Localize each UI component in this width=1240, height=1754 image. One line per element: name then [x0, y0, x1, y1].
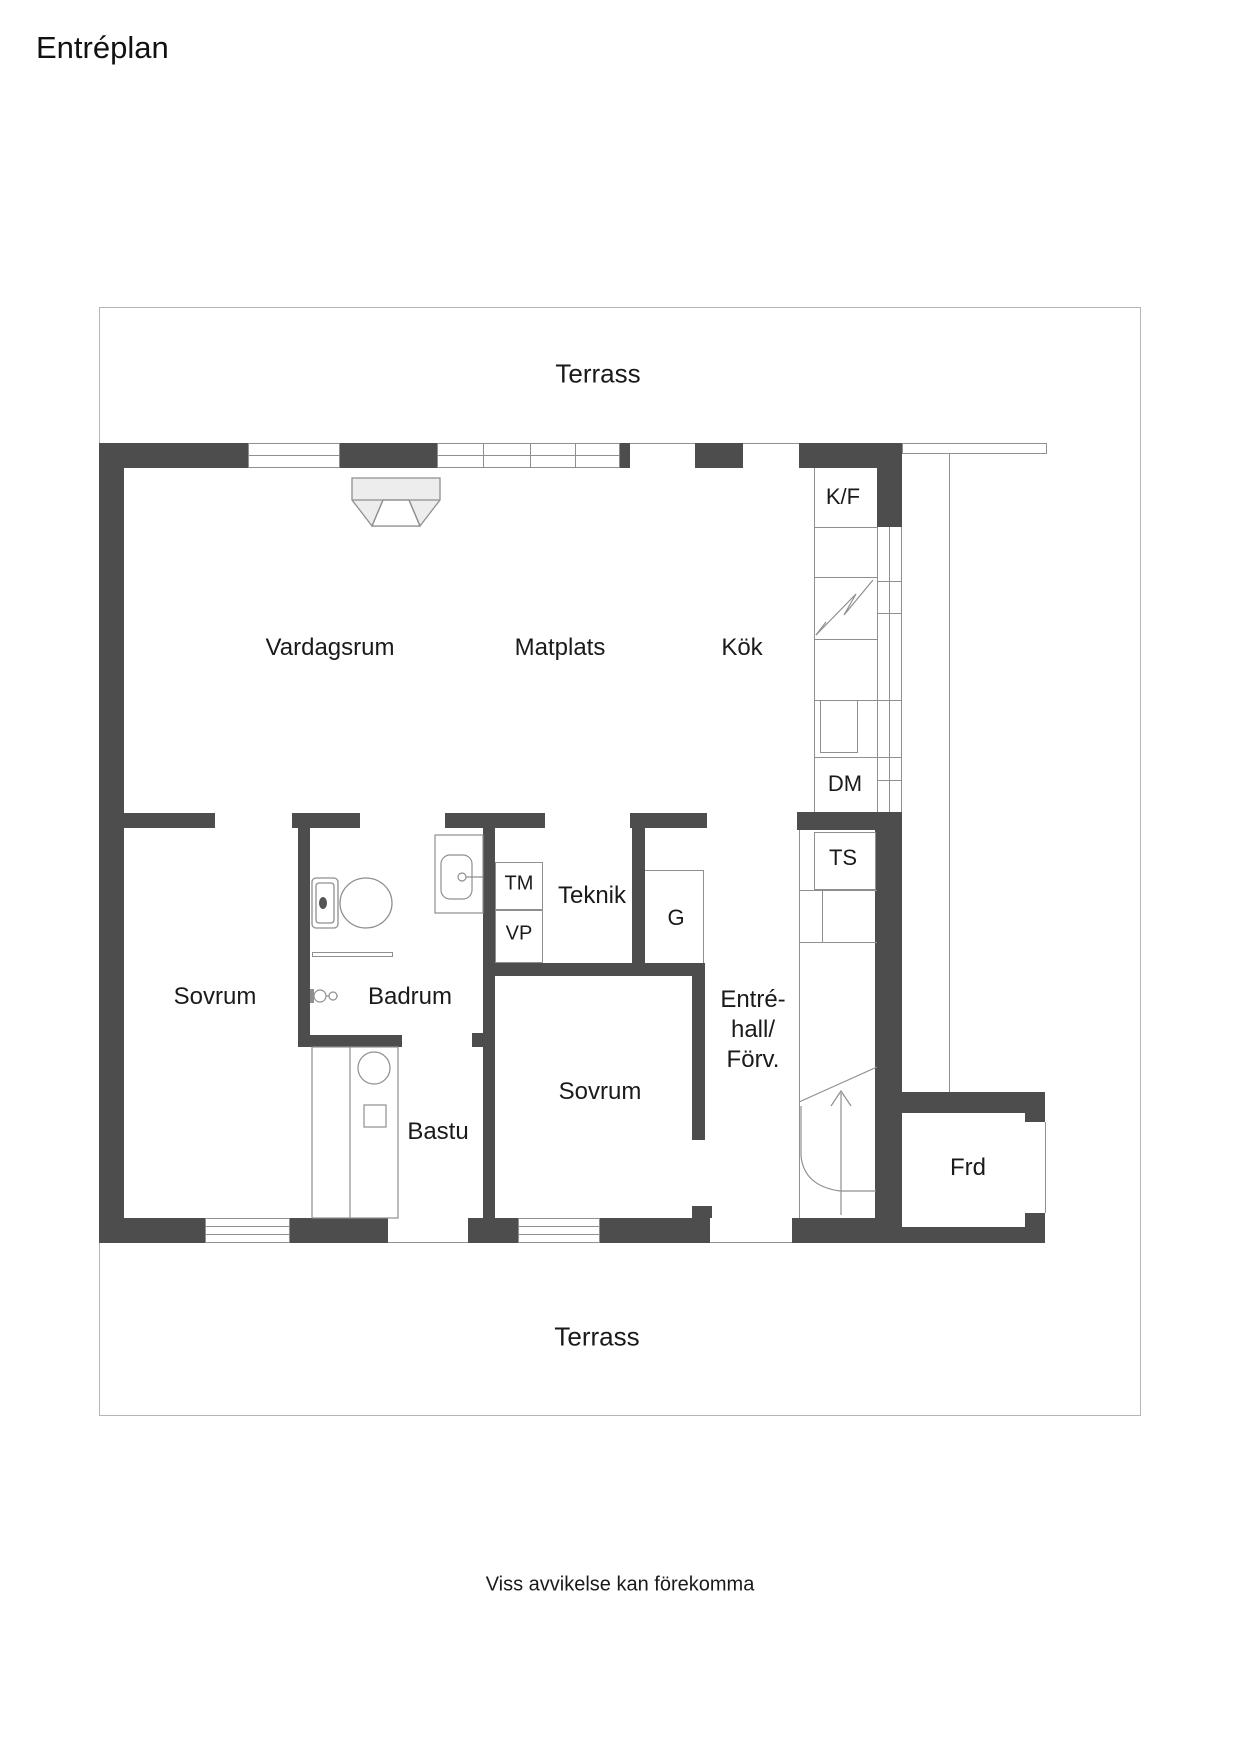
room-label-badrum: Badrum: [368, 983, 452, 1011]
window-glazing-line: [206, 1226, 289, 1227]
room-label-entrehall-line2: hall/: [731, 1016, 775, 1044]
counter-line: [877, 780, 901, 781]
counter-line: [889, 527, 890, 812]
terrace-outline: [99, 307, 1141, 1416]
door-jamb: [1025, 1113, 1045, 1122]
counter-line: [877, 581, 901, 582]
door-jamb: [1025, 1213, 1045, 1227]
counter-line: [877, 700, 901, 701]
wall-segment: [483, 828, 495, 1218]
counter-line: [877, 757, 901, 758]
closet-line: [703, 870, 704, 963]
window-mullion: [483, 444, 484, 467]
counter-line: [814, 757, 877, 758]
counter-line: [901, 527, 902, 812]
window-glazing-line: [206, 1234, 289, 1235]
door-opening-line: [1045, 1122, 1046, 1213]
window-glazing-line: [519, 1226, 599, 1227]
wall-segment: [695, 443, 743, 468]
towel-rail-icon: [312, 952, 393, 957]
counter-line: [814, 468, 815, 812]
wall-segment: [632, 813, 645, 976]
fixture-label-g: G: [667, 905, 684, 931]
door-jamb: [472, 1033, 483, 1047]
opening-line: [710, 1242, 792, 1243]
wall-segment: [124, 813, 215, 828]
room-label-entrehall-line1: Entré-: [720, 986, 785, 1014]
wall-segment: [692, 976, 705, 1140]
window: [205, 1218, 290, 1243]
counter-line: [814, 639, 877, 640]
closet-line: [799, 890, 877, 891]
wall-segment: [340, 443, 437, 468]
wall-segment: [900, 1227, 1045, 1243]
room-label-sovrum-1: Sovrum: [174, 983, 257, 1011]
wall-segment: [99, 1218, 205, 1243]
wall-segment: [797, 812, 902, 830]
opening-line: [388, 1242, 468, 1243]
wall-segment: [799, 443, 902, 468]
wall-segment: [900, 1092, 1045, 1113]
window-mullion: [575, 444, 576, 467]
terrace-label-top: Terrass: [555, 359, 640, 390]
room-label-frd: Frd: [950, 1154, 986, 1182]
wall-segment: [600, 1218, 710, 1243]
room-label-entrehall-line3: Förv.: [727, 1046, 780, 1074]
kitchen-sink-icon: [820, 700, 858, 753]
room-label-matplats: Matplats: [515, 634, 606, 662]
window: [518, 1218, 600, 1243]
terrace-label-bottom: Terrass: [554, 1322, 639, 1353]
closet-line: [799, 830, 800, 1218]
wall-segment: [292, 813, 360, 828]
counter-line: [877, 613, 901, 614]
fixture-label-kf: K/F: [826, 484, 860, 510]
counter-line: [814, 527, 877, 528]
terrace-edge-line: [949, 454, 950, 1092]
room-label-teknik: Teknik: [558, 882, 626, 910]
wall-segment: [875, 830, 902, 1243]
fixture-label-dm: DM: [828, 771, 862, 797]
wall-segment: [290, 1218, 388, 1243]
closet-line: [822, 890, 823, 942]
wall-segment: [620, 443, 630, 468]
wall-segment: [298, 828, 310, 1047]
fixture-label-tm: TM: [505, 873, 534, 896]
closet-line: [645, 870, 703, 871]
disclaimer-text: Viss avvikelse kan förekomma: [486, 1574, 755, 1597]
door-jamb: [692, 1206, 712, 1218]
wall-segment: [483, 963, 705, 976]
wall-segment: [445, 813, 545, 828]
page-title: Entréplan: [36, 30, 169, 66]
window-glazing-line: [438, 455, 619, 456]
wall-segment: [877, 468, 902, 527]
counter-line: [814, 577, 877, 578]
room-label-sovrum-2: Sovrum: [559, 1078, 642, 1106]
opening-line: [630, 443, 695, 444]
window-mullion: [530, 444, 531, 467]
floor-plan: Entréplan Terrass Terrass: [0, 0, 1240, 1754]
fixture-label-ts: TS: [829, 845, 857, 871]
opening-line: [743, 443, 799, 444]
window-glazing-line: [519, 1234, 599, 1235]
closet-line: [799, 942, 877, 943]
wall-segment: [468, 1218, 518, 1243]
window-glazing-line: [249, 455, 339, 456]
counter-line: [877, 527, 878, 812]
fixture-label-vp: VP: [506, 923, 533, 946]
wall-segment: [300, 1035, 402, 1047]
room-label-bastu: Bastu: [407, 1118, 468, 1146]
wall-segment: [99, 443, 124, 1243]
room-label-vardagsrum: Vardagsrum: [266, 634, 395, 662]
railing: [902, 443, 1047, 454]
room-label-kok: Kök: [721, 634, 762, 662]
